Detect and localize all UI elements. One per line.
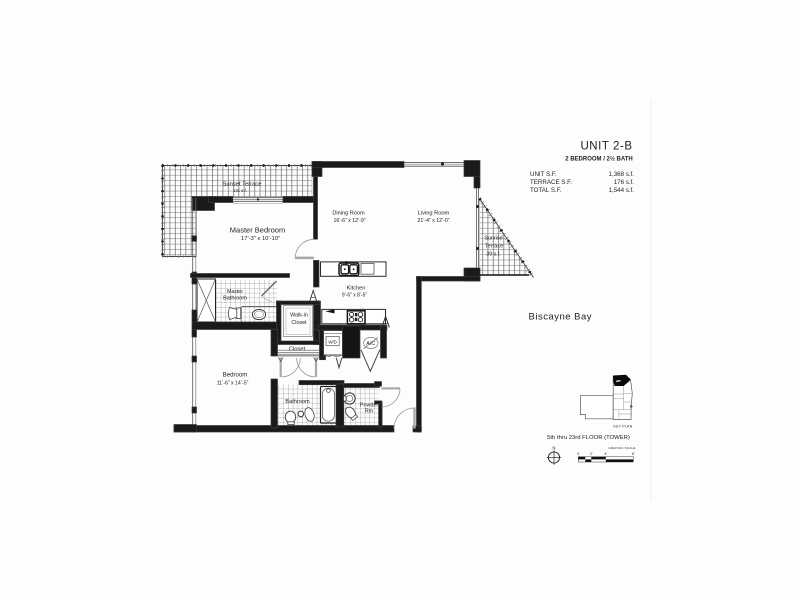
svg-text:2’: 2’ <box>590 452 593 456</box>
svg-text:Bathroom: Bathroom <box>223 295 247 301</box>
svg-text:Closet: Closet <box>291 320 307 326</box>
svg-text:UNIT S.F.: UNIT S.F. <box>530 171 557 178</box>
svg-text:39 s.f.: 39 s.f. <box>486 252 500 258</box>
svg-text:Sunset Terrace: Sunset Terrace <box>223 182 262 188</box>
svg-text:0: 0 <box>577 452 579 456</box>
svg-text:Master Bedroom: Master Bedroom <box>230 225 285 234</box>
svg-text:5th thru 23rd FLOOR (TOWER): 5th thru 23rd FLOOR (TOWER) <box>547 435 630 441</box>
svg-text:GRAPHIC SCALE: GRAPHIC SCALE <box>608 446 635 450</box>
svg-text:16’-6” x 12’-9”: 16’-6” x 12’-9” <box>333 218 365 224</box>
svg-text:UNIT 2-B: UNIT 2-B <box>580 141 632 153</box>
svg-text:TOTAL S.F.: TOTAL S.F. <box>530 187 562 194</box>
svg-text:N: N <box>552 446 555 451</box>
svg-text:Powder: Powder <box>360 402 378 408</box>
svg-text:11’-6” x 14’-5”: 11’-6” x 14’-5” <box>217 380 249 386</box>
svg-text:Dining Room: Dining Room <box>332 211 365 217</box>
svg-text:9’-6” x 8’-5”: 9’-6” x 8’-5” <box>342 292 368 298</box>
svg-text:4’: 4’ <box>604 452 607 456</box>
svg-text:TERRACE S.F.: TERRACE S.F. <box>530 179 572 186</box>
svg-text:176 s.f.: 176 s.f. <box>614 179 635 186</box>
svg-text:Walk-in: Walk-in <box>290 313 308 319</box>
svg-text:21’-4” x 12’-0”: 21’-4” x 12’-0” <box>417 218 449 224</box>
svg-text:Sunrise: Sunrise <box>484 236 502 242</box>
svg-text:1,368 s.f.: 1,368 s.f. <box>609 171 635 178</box>
svg-text:2 BEDROOM / 2½ BATH: 2 BEDROOM / 2½ BATH <box>565 156 633 163</box>
svg-text:Biscayne Bay: Biscayne Bay <box>529 312 593 323</box>
svg-text:A/C: A/C <box>366 341 375 347</box>
svg-text:1,544 s.f.: 1,544 s.f. <box>609 187 635 194</box>
svg-text:Rm: Rm <box>365 409 373 415</box>
svg-text:8’: 8’ <box>632 452 635 456</box>
svg-text:Terrace: Terrace <box>485 244 503 250</box>
svg-text:W/D: W/D <box>328 340 337 345</box>
svg-text:Bedroom: Bedroom <box>223 372 248 379</box>
svg-text:17’-3” x 10’-10”: 17’-3” x 10’-10” <box>241 236 280 242</box>
svg-text:Kitchen: Kitchen <box>347 286 366 292</box>
svg-text:Living Room: Living Room <box>418 211 450 217</box>
svg-text:KEY PLAN: KEY PLAN <box>614 425 633 429</box>
svg-text:Bathroom: Bathroom <box>285 399 310 405</box>
svg-text:131 s.f.: 131 s.f. <box>233 188 247 193</box>
svg-text:Closet: Closet <box>289 347 306 353</box>
svg-text:Master: Master <box>227 289 243 295</box>
